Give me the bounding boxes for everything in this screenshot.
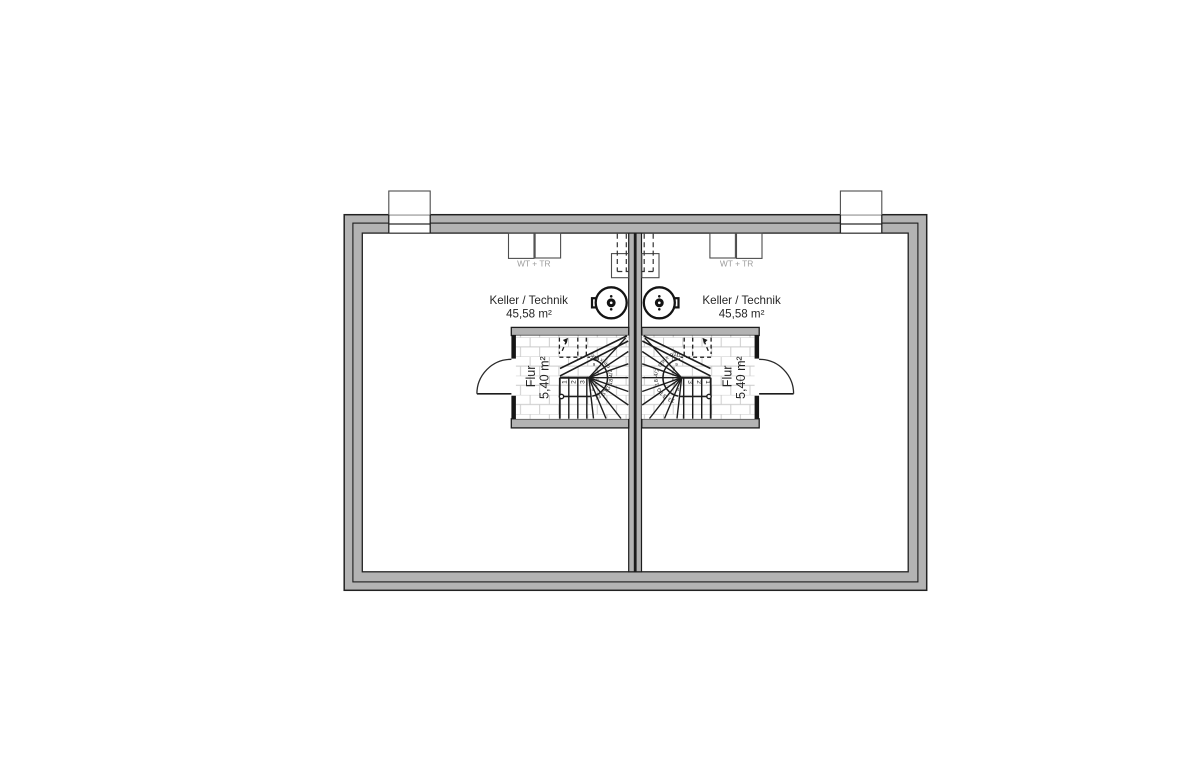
svg-text:2: 2 — [571, 380, 578, 384]
svg-text:Keller / Technik: Keller / Technik — [702, 294, 781, 307]
svg-text:WT + TR: WT + TR — [720, 258, 753, 268]
svg-text:WT + TR: WT + TR — [517, 258, 550, 268]
svg-text:45,58 m²: 45,58 m² — [506, 307, 552, 320]
svg-text:11: 11 — [676, 353, 681, 358]
svg-text:10: 10 — [594, 357, 599, 362]
svg-text:3: 3 — [580, 380, 587, 384]
svg-text:5,40 m²: 5,40 m² — [537, 356, 551, 399]
svg-text:Flur: Flur — [524, 366, 538, 388]
svg-text:45,58 m²: 45,58 m² — [719, 307, 765, 320]
svg-text:11: 11 — [590, 353, 595, 358]
svg-text:5,40 m²: 5,40 m² — [734, 356, 748, 399]
svg-text:1: 1 — [562, 380, 569, 384]
svg-text:3: 3 — [686, 380, 693, 384]
svg-text:1: 1 — [704, 380, 711, 384]
svg-text:Keller / Technik: Keller / Technik — [489, 294, 568, 307]
svg-text:2: 2 — [695, 380, 702, 384]
svg-text:Flur: Flur — [721, 366, 735, 388]
